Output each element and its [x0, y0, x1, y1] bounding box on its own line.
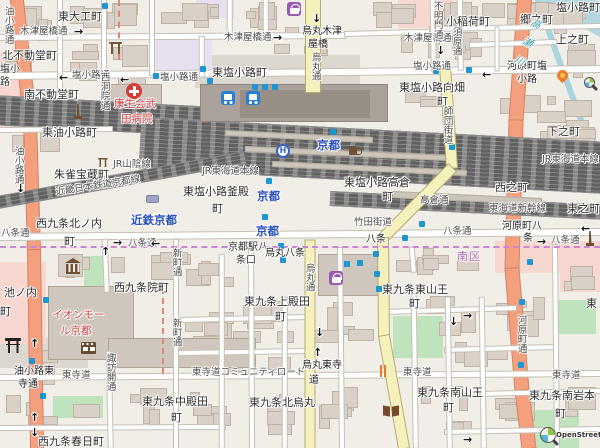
pub-icon — [348, 144, 361, 156]
map-label: 東塩小路町 — [212, 67, 267, 79]
map-label: 小路 — [517, 74, 537, 85]
building — [547, 96, 556, 106]
map-label: 町 — [382, 191, 393, 203]
oneway-arrow: ← — [120, 74, 129, 86]
map-label: イオンモー — [52, 310, 105, 322]
street-label: 木津屋橋通 — [224, 33, 272, 44]
map-label: 南不動堂町 — [24, 89, 79, 101]
blue-marker-icon — [29, 358, 35, 364]
map-label: 東塩小路向畑 — [399, 82, 465, 94]
map-label: 東九条北烏丸 — [249, 397, 315, 409]
building — [564, 100, 592, 118]
map-label: 東九条中殿田 — [142, 396, 208, 408]
map-label: 町 — [409, 298, 420, 310]
blue-marker-icon — [374, 271, 380, 277]
building — [391, 8, 414, 24]
map-label: JR東海道本線 — [202, 167, 259, 178]
building — [204, 322, 228, 336]
map-label: 西九条院町 — [114, 282, 169, 294]
map-label: 町 — [212, 203, 223, 215]
osm-logo-icon[interactable] — [540, 427, 556, 443]
blue-marker-icon — [200, 66, 206, 72]
building — [376, 12, 391, 28]
oneway-arrow: → — [537, 236, 546, 248]
oneway-arrow: → — [113, 237, 122, 249]
oneway-arrow: ↑ — [101, 246, 110, 258]
hotel-icon — [276, 144, 290, 158]
building — [122, 45, 148, 66]
street-label: 新町通 — [170, 248, 181, 277]
building — [327, 307, 339, 330]
oneway-arrow: ↓ — [312, 13, 321, 25]
map-label: 東之町 — [567, 203, 600, 215]
building — [321, 404, 349, 419]
blue-marker-icon — [449, 144, 455, 150]
shopping-bag-icon — [287, 2, 301, 16]
map-label: 八条 — [366, 234, 386, 245]
blue-marker-icon — [527, 259, 533, 265]
street-label: 東寺道コミュニティロード — [192, 368, 305, 379]
street-label: 八条通 — [1, 229, 30, 240]
street-label: 竹田街道 — [354, 218, 392, 229]
map-label: 塩小 — [0, 64, 20, 75]
map-label: 南区 — [457, 251, 481, 263]
map-label: 東塩小路釜殿 — [183, 186, 249, 198]
street-label: 東寺道 — [403, 368, 432, 379]
oneway-arrow: ← — [59, 72, 68, 84]
street-label: 師団街道 — [441, 106, 452, 144]
map-label: 塩小路町 — [556, 2, 600, 14]
map-label: 道 — [309, 375, 319, 386]
blue-marker-icon — [373, 251, 379, 257]
map-label: JR東海道本線 — [542, 155, 599, 166]
building — [73, 404, 100, 418]
shrine-icon — [109, 42, 122, 54]
district-boundary — [162, 288, 164, 374]
street-label: 河原町通 — [515, 315, 526, 353]
map-label: 町 — [0, 306, 11, 318]
street-label: 八条通 — [551, 236, 580, 247]
blue-marker-icon — [262, 214, 268, 220]
road-minor — [220, 255, 224, 448]
building — [111, 257, 126, 273]
street-label: 油小路通 — [12, 146, 23, 184]
blue-marker-icon — [402, 235, 408, 241]
map-label: 下之町 — [547, 126, 580, 138]
map-label: 西之町 — [495, 182, 528, 194]
book-icon — [383, 406, 400, 417]
oneway-arrow: ↓ — [436, 45, 445, 57]
building — [348, 329, 374, 341]
oneway-arrow: → — [463, 434, 472, 446]
map-label: JR山陰線 — [113, 160, 151, 171]
map-label: 東大工町 — [58, 11, 102, 23]
road-minor — [470, 40, 556, 46]
osm-logo-small-icon — [584, 77, 595, 88]
oneway-arrow: ← — [482, 69, 491, 81]
map-label: 町 — [64, 236, 75, 248]
street-label: 東寺道 — [62, 371, 91, 382]
osm-attribution[interactable]: OpenStreetMap — [540, 426, 598, 446]
building — [423, 258, 438, 270]
blue-marker-icon — [357, 260, 363, 266]
oneway-arrow: → — [463, 310, 472, 322]
oneway-arrow: ← — [581, 223, 590, 235]
bus-station-icon — [221, 91, 235, 105]
oneway-arrow: ↓ — [449, 316, 458, 328]
map-label: 東九条南山王 — [417, 387, 483, 399]
street-label: 烏丸通 — [303, 263, 314, 292]
museum-icon — [65, 258, 81, 273]
map-label: 東九条東山王 — [382, 284, 448, 296]
street-label: 不明門通 — [431, 1, 442, 39]
building — [571, 276, 596, 290]
map-label: 東九条南岩本 — [529, 390, 595, 402]
blue-marker-icon — [43, 297, 49, 303]
map-label: ル京都 — [60, 326, 92, 338]
map-label: 油小路東 — [14, 366, 54, 377]
blue-marker-icon — [419, 221, 425, 227]
monument-icon — [73, 104, 83, 120]
shopping-bag-icon — [329, 271, 343, 285]
map-label: 東九条上殿田 — [244, 296, 310, 308]
map-label: 田病院 — [121, 114, 153, 126]
station-label: 京都 — [256, 225, 279, 238]
road-minor — [496, 27, 499, 70]
map-label: 北不動堂町 — [2, 50, 57, 62]
building — [430, 296, 446, 308]
street-label: 木津屋橋通 — [20, 27, 68, 38]
street-label: 新町通 — [170, 318, 181, 347]
map-label: 上之町 — [556, 34, 589, 46]
oneway-arrow: ← — [151, 238, 160, 250]
blue-marker-icon — [262, 84, 268, 90]
blue-marker-icon — [330, 129, 336, 135]
building — [182, 3, 208, 20]
blue-marker-icon — [272, 84, 278, 90]
map-label: 河原町八 — [502, 221, 542, 232]
building — [533, 297, 545, 320]
oneway-arrow: ↑ — [313, 347, 322, 359]
building — [224, 277, 234, 287]
building — [274, 44, 291, 54]
shrine-icon — [98, 158, 108, 167]
street-label: 八条通 — [443, 227, 472, 238]
map-label: 東 — [586, 298, 597, 310]
map-label: 康生会武 — [114, 99, 156, 111]
station-label: 京都 — [317, 139, 340, 152]
street-label: 塩小路通 — [160, 73, 198, 84]
station-label: 近鉄京都 — [131, 214, 177, 227]
street-label: 須原通 — [450, 27, 461, 56]
street-label: 塩小路通 — [413, 62, 451, 73]
oneway-arrow: → — [74, 26, 83, 38]
map-label: 東油小路町 — [42, 127, 97, 139]
map-label: 町 — [275, 311, 286, 323]
blue-marker-icon — [40, 393, 46, 399]
building — [210, 7, 219, 17]
map-label: 京都駅八 — [228, 242, 268, 253]
map-label: 池ノ内 — [4, 287, 37, 299]
blue-marker-icon — [466, 67, 472, 73]
street-label: 高倉通 — [420, 196, 449, 207]
street-label: 東寺道 — [552, 371, 581, 382]
map-label: 烏丸東寺 — [302, 360, 342, 371]
station-platform-icon — [146, 195, 159, 203]
map-label: 西九条北ノ内 — [36, 218, 102, 230]
street-label: 西洞院通 — [98, 72, 109, 110]
map-label: 西九条春日町 — [38, 436, 104, 448]
street-label: 諏訪開通 — [104, 353, 115, 391]
building — [470, 38, 482, 58]
map-label: 烏丸木津 — [302, 26, 342, 37]
osm-attribution-text[interactable]: OpenStreetMap — [556, 432, 600, 440]
blue-marker-icon — [344, 261, 350, 267]
building — [246, 11, 256, 18]
oneway-arrow: → — [273, 32, 282, 44]
map-label: 条口 — [236, 255, 256, 266]
map-label: 東海道新幹線 — [489, 204, 546, 215]
building — [567, 50, 596, 66]
blue-marker-icon — [266, 178, 272, 184]
street-label: 烏丸通 — [309, 52, 320, 81]
map-label: 東塩小路高倉 — [344, 177, 410, 189]
map-label: 条 — [523, 233, 533, 244]
map-label: 屋橋 — [308, 39, 328, 50]
map-label: 町 — [443, 402, 454, 414]
road-minor — [150, 0, 154, 75]
blue-marker-icon — [518, 362, 524, 368]
building — [267, 411, 295, 425]
blue-marker-icon — [102, 3, 108, 9]
road-minor — [249, 243, 254, 448]
oneway-arrow: ↓ — [315, 327, 324, 339]
map-label: 烏丸八条 — [265, 248, 305, 259]
map-label: 寺通 — [18, 379, 38, 390]
landuse-area — [393, 316, 443, 358]
building — [72, 51, 99, 59]
blue-marker-icon — [519, 299, 525, 305]
blue-marker-icon — [252, 84, 258, 90]
station-label: 京都 — [257, 190, 280, 203]
map-label: 路 — [0, 77, 10, 88]
building — [198, 263, 219, 276]
cinema-icon — [81, 342, 96, 354]
map-label: 町 — [555, 408, 566, 420]
map-label: 町 — [171, 412, 182, 424]
building — [537, 111, 565, 123]
bus-station-icon — [246, 91, 260, 105]
torii-icon — [5, 338, 21, 353]
oneway-arrow: ↑ — [30, 412, 39, 424]
oneway-arrow: ↓ — [16, 183, 25, 195]
blue-marker-icon — [153, 73, 159, 79]
oneway-arrow: ↑ — [30, 338, 39, 350]
map-canvas: 東大工町木津屋橋通→木津屋橋通→木津屋橋通↓烏丸木津屋橋↓烏丸通塩小路町郷之町小… — [0, 0, 600, 448]
building — [6, 395, 21, 413]
restaurant-icon — [378, 365, 388, 377]
street-label: 油小路通 — [2, 6, 13, 44]
